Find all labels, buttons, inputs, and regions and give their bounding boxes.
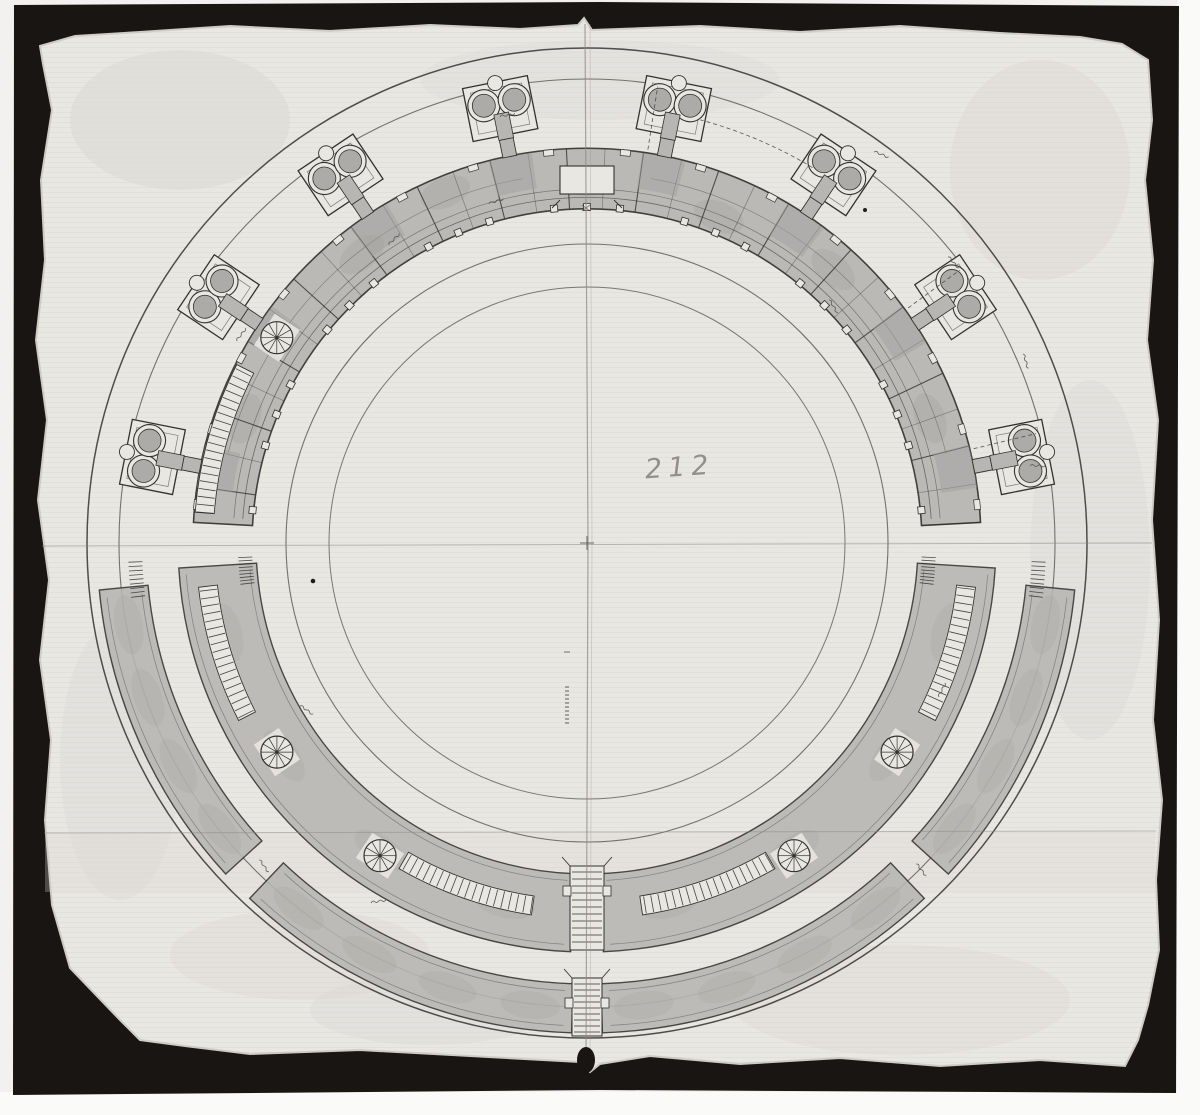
ink-dot	[311, 579, 316, 584]
chapel-corridor	[499, 138, 516, 158]
chapel-corridor	[972, 456, 992, 473]
niche	[485, 217, 494, 226]
stain	[70, 50, 290, 190]
photo-margin-right	[1177, 0, 1200, 1115]
niche	[904, 441, 913, 450]
pencil-inventory-number: 212	[644, 450, 716, 486]
stain	[950, 60, 1130, 280]
niche	[249, 506, 257, 514]
niche	[680, 217, 689, 226]
ink-dot	[863, 208, 867, 212]
spiral-newel	[792, 854, 795, 857]
outer-portal-stair	[572, 978, 602, 1036]
spiral-newel	[378, 854, 381, 857]
jamb-block	[563, 886, 571, 896]
spiral-newel	[896, 751, 899, 754]
chapel-corridor	[181, 456, 201, 473]
photo-margin-bottom	[0, 1092, 1200, 1115]
battlement-step	[620, 149, 631, 156]
niche	[918, 506, 926, 514]
jamb-block	[565, 998, 573, 1008]
spiral-newel	[275, 751, 278, 754]
battlement-step	[974, 499, 981, 510]
jamb-block	[603, 886, 611, 896]
plan-drawing-canvas	[0, 0, 1200, 1115]
niche	[261, 441, 270, 450]
spiral-newel	[275, 336, 278, 339]
photo-of-circular-plan-drawing: 212	[0, 0, 1200, 1115]
top-vestibule	[560, 166, 614, 194]
battlement-step	[543, 149, 554, 156]
jamb-block	[601, 998, 609, 1008]
paper-tear-hole	[577, 1047, 595, 1073]
chapel-corridor	[657, 138, 674, 158]
